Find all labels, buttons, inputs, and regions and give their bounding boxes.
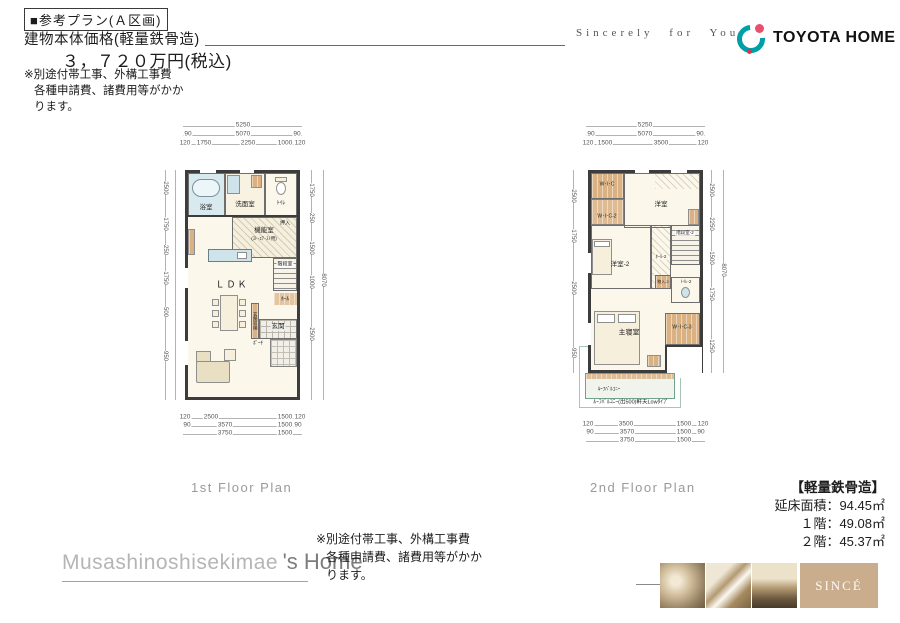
room-label: W･I･C [600,183,615,188]
room-label-master: 主寝室 [619,330,640,337]
room-label: ﾄｲﾚ [277,201,285,207]
dim-label: 2500 [308,327,314,340]
room-label: 階段室-2 [675,231,695,236]
dim-label: 1250 [708,339,714,352]
photo-thumbnail [752,563,797,608]
room-label: 階段室 [276,263,293,268]
chair [239,321,246,328]
footer-note-line: ※別途付帯工事、外構工事費 [316,530,482,548]
dim-label: 3500 [618,421,634,428]
footer-underline [62,581,308,582]
toyota-home-logo: TOYOTA HOME [733,22,893,56]
dim-label: 950 [570,348,576,358]
dim-label: 2250 [708,217,714,230]
room-label: 玄関収納 [253,312,258,330]
kitchen-cabinet [188,229,195,255]
dining-table [220,295,238,331]
pillow [594,241,610,247]
room-label-ldk: ＬＤＫ [215,281,248,290]
header-divider [205,45,565,46]
footer-note-line: ります。 [316,566,482,584]
dim-label: 1750 [162,217,168,230]
dim-label: 90 [695,131,704,138]
footer-note-line: 各種申請費、諸費用等がかか [316,548,482,566]
toilet-bowl [276,182,286,195]
dim-label: 1500 [277,414,293,421]
window [185,341,188,365]
dim-line [165,170,166,400]
dim-label: 1750 [308,183,314,196]
header-note: ※別途付帯工事、外構工事費 各種申請費、諸費用等がかか ります。 [24,67,184,115]
floor-plan-2: 5250 90 5070 90 120 1500 3500 120 2500 1… [565,118,805,498]
room-label: ﾎｰﾙ-2 [655,255,668,260]
dim-label: 250 [162,245,168,255]
header-note-line: ※別途付帯工事、外構工事費 [24,67,184,83]
dim-label: 90 [696,429,705,436]
ceiling-hatch [655,174,699,189]
since-logo: SINCÉ [800,563,878,608]
room-label: 物入-2 [657,280,669,284]
specs-title: 【軽量鉄骨造】 [700,479,885,497]
dim-label: 2500 [708,183,714,196]
brand-name: TOYOTA HOME [773,29,896,47]
sofa [196,361,230,383]
dim-label: 950 [162,351,168,361]
dim-label: 1500 [708,251,714,264]
room-label: 洗面室 [235,202,255,209]
dim-label: 2500 [203,414,219,421]
pillow [597,314,615,323]
dim-label: 3750 [619,437,635,444]
dim-label: 90 [293,422,302,429]
house-outline-1f: 浴室 洗面室 ﾄｲﾚ 押入 機能室 (ｽﾄ･ｴｱ･ｽﾄ用) 階段室 ＬＤＫ ﾎｰ… [185,170,300,400]
header-note-line: 各種申請費、諸費用等がかか [24,83,184,99]
window [185,268,188,288]
plan1-caption: 1st Floor Plan [191,480,292,495]
photo-thumbnail [706,563,751,608]
balcony-label: ﾙｰﾌﾊﾞﾙｺﾆｰ [598,388,621,393]
dim-label: 120 [179,414,192,421]
dim-label: 2500 [570,281,576,294]
specs-2f-area: ２階：45.37㎡ [700,533,885,551]
dim-label: 2250 [240,140,256,147]
dim-label: 5070 [637,131,653,138]
chair [212,310,219,317]
dim-label: 90 [585,429,594,436]
dim-label: 120 [582,140,595,147]
dim-label: 1500 [277,422,293,429]
chair [239,299,246,306]
kitchen-sink [237,252,247,259]
specs-1f-area: １階：49.08㎡ [700,515,885,533]
room-label: 玄関 [271,324,286,331]
photo-thumbnail [660,563,705,608]
dim-label: 1500 [277,430,293,437]
specs-total-area: 延床面積：94.45㎡ [700,497,885,515]
brand-slogan: Sincerely for You [576,27,739,39]
room-label: (ｽﾄ･ｴｱ･ｽﾄ用) [251,237,277,242]
plan2-caption: 2nd Floor Plan [590,480,696,495]
window [588,323,591,345]
chair [212,299,219,306]
room-label: 押入 [280,222,290,227]
dim-label: 1500 [676,437,692,444]
chair [212,321,219,328]
dim-label: 1750 [162,271,168,284]
header-note-line: ります。 [24,99,184,115]
sofa-chair [196,351,211,362]
dim-label: 8070 [720,263,726,276]
porch [270,339,297,367]
room-wic2 [591,199,624,225]
room-label: ﾎｰﾙ [281,297,289,303]
toilet-bowl [681,287,690,298]
room-label: ﾎﾟｰﾁ [253,342,263,347]
flyer-page: ■参考プラン(Ａ区画) 建物本体価格(軽量鉄骨造) ３，７２０万円(税込) ※別… [0,0,900,623]
dim-label: 500 [162,307,168,317]
dim-label: 120 [582,421,595,428]
dim-label: 90 [183,131,192,138]
floor-plan-1: 5250 90 5070 90 120 1750 2250 1000 120 2… [135,118,405,498]
house-outline-2f: W･I･C W･I･C-2 洋室 洋室-2 ﾎｰﾙ-2 階段室-2 物入-2 ﾄ… [588,170,703,373]
logo-pink-dot-icon [755,24,764,33]
dim-label: 1750 [570,229,576,242]
footer-note: ※別途付帯工事、外構工事費 各種申請費、諸費用等がかか ります。 [316,530,482,584]
dim-label: 90 [182,422,191,429]
dim-label: 250 [308,213,314,223]
room-label: W･I･C-2 [597,215,616,220]
room-label: ﾄｲﾚ-2 [681,280,692,285]
dim-label: 1750 [196,140,212,147]
specs-block: 【軽量鉄骨造】 延床面積：94.45㎡ １階：49.08㎡ ２階：45.37㎡ [700,479,885,551]
dim-label: 2500 [162,181,168,194]
dim-label: 2500 [570,189,576,202]
dim-label: 1000 [308,275,314,288]
dim-label: 90 [586,131,595,138]
dim-label: 120 [294,414,307,421]
dim-label: 3570 [217,422,233,429]
room-label: 洋室 [655,202,668,209]
dim-label: 3500 [653,140,669,147]
room-label: 浴室 [200,205,213,212]
dim-label: 3750 [217,430,233,437]
room-label: 機能室 [254,228,274,235]
vanity [227,175,240,194]
dim-label: 3570 [619,429,635,436]
dim-label: 1750 [708,287,714,300]
dim-label: 120 [697,421,710,428]
dim-label: 1500 [676,421,692,428]
dim-label: 5070 [235,131,251,138]
dim-label: 8070 [320,273,326,286]
project-name-light: Musashinoshisekimae [62,551,278,574]
dim-label: 5250 [235,122,251,129]
dim-label: 120 [294,140,307,147]
dim-label: 1500 [597,140,613,147]
pillow [618,314,636,323]
balcony-edge [586,374,674,379]
dim-label: 120 [179,140,192,147]
footer-accent-line [636,584,660,585]
desk [647,355,661,367]
dim-line [175,170,176,400]
bathtub [192,179,220,197]
price-label: 建物本体価格(軽量鉄骨造) [24,28,200,49]
room-label: 洋室-2 [611,262,630,269]
chair [239,310,246,317]
desk [688,209,699,225]
dim-label: 1000 [277,140,293,147]
room-label: W･I･C-3 [672,326,691,331]
balcony-note: ﾙｰﾌﾊﾞﾙｺﾆｰ(出500)軒天Lowﾀｲﾌﾟ [593,400,668,406]
side-table [224,349,236,361]
dim-label: 5250 [637,122,653,129]
logo-red-dot-icon [747,49,752,54]
dim-label: 90 [292,131,301,138]
dim-label: 120 [697,140,710,147]
dim-label: 1500 [308,241,314,254]
washer [251,175,262,188]
dim-label: 1500 [676,429,692,436]
